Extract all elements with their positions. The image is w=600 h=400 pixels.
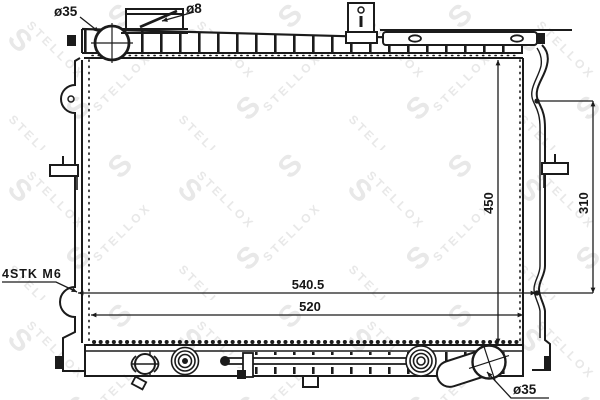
pipe-end-plug: [220, 356, 230, 366]
stellox-watermark: [0, 0, 600, 400]
dim-value-core-width: 520: [299, 299, 321, 314]
top-center-bracket: [346, 3, 377, 43]
right-foot-clip: [544, 356, 551, 369]
drawing-canvas: S STELLOX S STELLOX S STELLOX: [0, 0, 600, 400]
dim-value-overall-height: 450: [481, 192, 496, 214]
label-cap-vent-diameter: ø8: [186, 1, 202, 16]
label-outlet-diameter: ø35: [513, 382, 537, 397]
dim-anchor-dot: [534, 98, 539, 103]
dim-value-overall-width: 540.5: [292, 277, 325, 292]
filler-cap: [121, 9, 188, 33]
label-stud-spec: 4STK M6: [2, 267, 62, 281]
left-top-clip: [67, 35, 76, 46]
dim-value-mount-height: 310: [576, 192, 591, 214]
left-foot-clip: [55, 356, 63, 369]
right-top-clip: [537, 33, 545, 44]
drain-bullseye: [172, 348, 199, 375]
label-inlet-diameter: ø35: [54, 4, 78, 19]
radiator-technical-drawing: S STELLOX S STELLOX S STELLOX: [0, 0, 600, 400]
bottom-tab: [303, 376, 318, 387]
pipe-fitting: [406, 346, 436, 376]
